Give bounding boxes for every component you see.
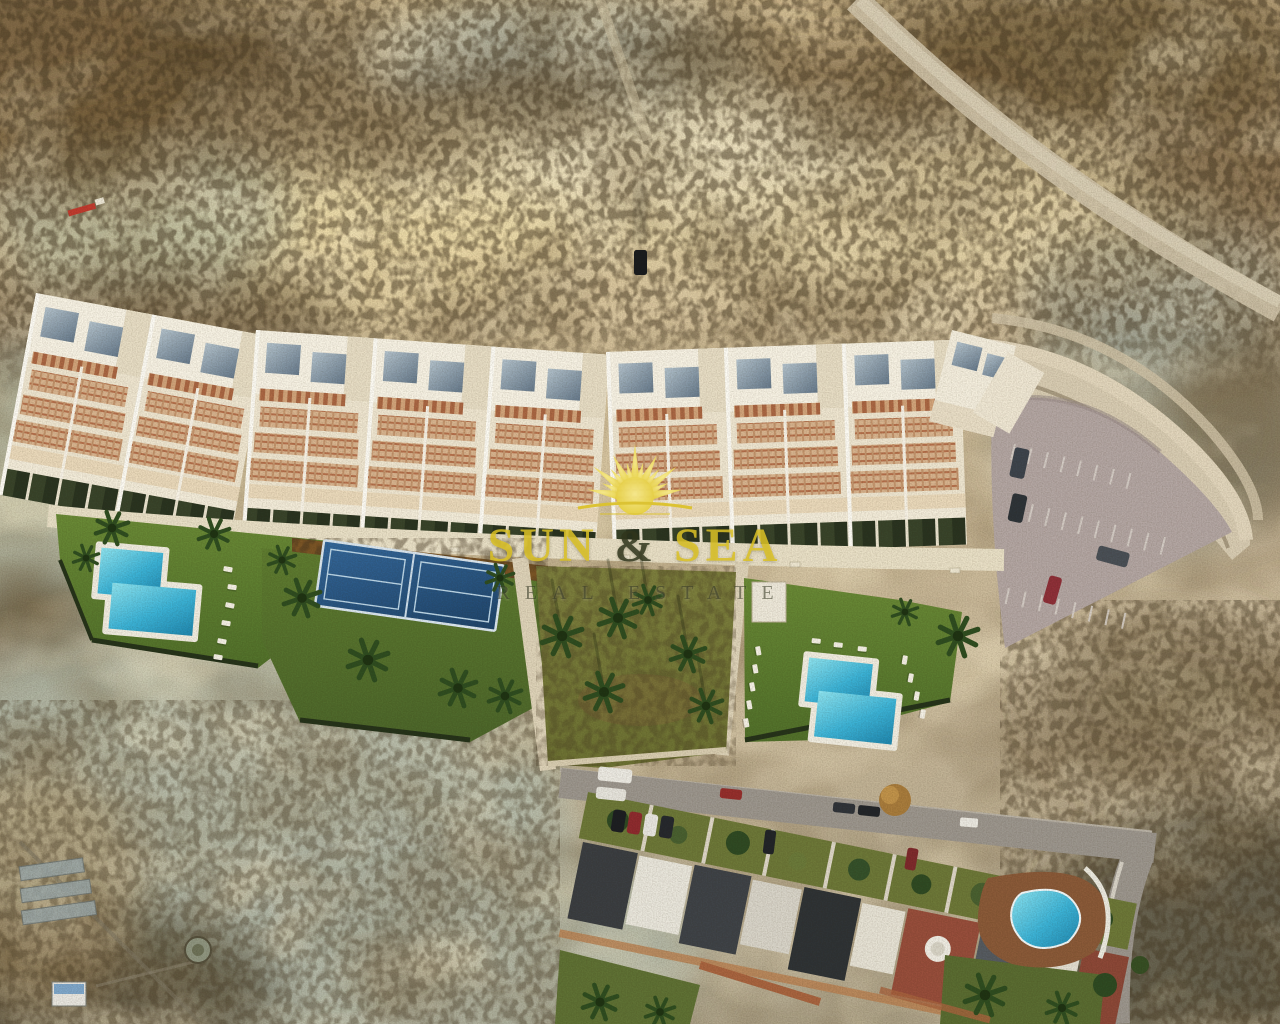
aerial-photo-canvas — [0, 0, 1280, 1024]
photo-grain — [0, 0, 1280, 1024]
aerial-photo: SUN & SEA REAL ESTATE — [0, 0, 1280, 1024]
